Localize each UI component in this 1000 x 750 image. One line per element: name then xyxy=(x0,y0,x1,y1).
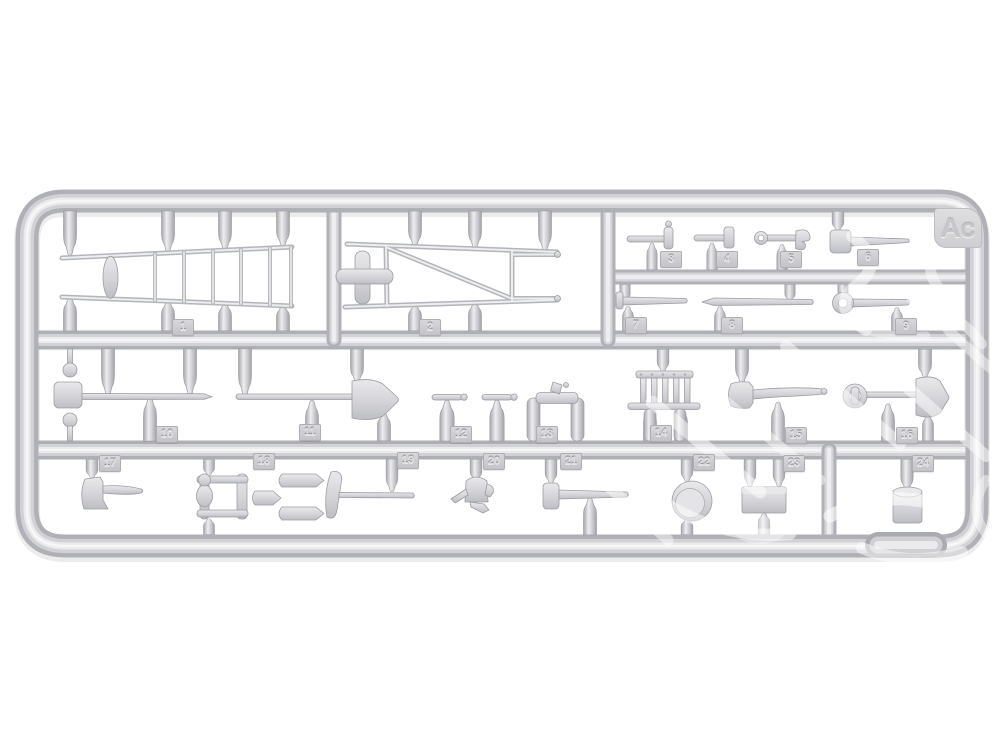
part-number-tag: 21 xyxy=(560,453,582,470)
part-number-tag: 7 xyxy=(625,317,647,334)
part-number-tag: 24 xyxy=(912,455,934,472)
part-number-tag: 22 xyxy=(693,454,715,471)
sprue-gate-stubs xyxy=(64,211,934,535)
part-number-tag: 5 xyxy=(780,251,802,268)
part-number-tag: 3 xyxy=(660,251,682,268)
part-number-tag: 18 xyxy=(253,453,275,470)
part-number-tag: 23 xyxy=(783,455,805,472)
part-number-tag: 4 xyxy=(716,251,738,268)
part-number-tag: 14 xyxy=(650,425,672,442)
part-number-tag: 20 xyxy=(483,453,505,470)
part-number-tag: 16 xyxy=(896,427,918,444)
part-number-tag: 19 xyxy=(397,452,419,469)
part-number-tag: 10 xyxy=(156,426,178,443)
part-1-ladder xyxy=(62,247,292,306)
part-number-tag: 9 xyxy=(895,318,917,335)
sprue-code-label: Ac xyxy=(934,208,982,248)
part-2-braced-frame xyxy=(336,244,561,307)
part-17-hatchet xyxy=(82,477,143,509)
part-number-tag: 17 xyxy=(99,455,121,472)
part-number-tag: 11 xyxy=(299,424,321,441)
part-number-tag: 6 xyxy=(857,249,879,266)
sprue-runner-graphic xyxy=(0,0,1000,750)
sprue-photo: 1 2 3 4 5 6 7 8 9 10 11 12 13 14 15 16 1… xyxy=(0,0,1000,750)
part-18-folding-frame xyxy=(197,474,249,519)
part-12-t-handle-tools xyxy=(432,394,517,400)
part-number-tag: 2 xyxy=(419,319,441,336)
part-number-tag: 13 xyxy=(536,426,558,443)
part-number-tag: 15 xyxy=(785,427,807,444)
part-number-tag: 12 xyxy=(450,426,472,443)
part-number-tag: 8 xyxy=(721,317,743,334)
part-20-oil-can xyxy=(451,477,493,513)
part-number-tag: 1 xyxy=(172,319,194,336)
part-8-crowbar xyxy=(702,298,813,306)
